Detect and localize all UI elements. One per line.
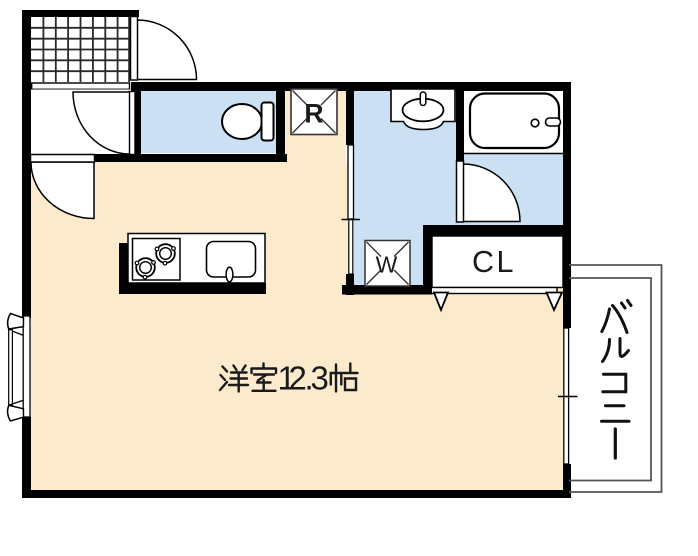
svg-text:R: R xyxy=(304,99,323,129)
svg-text:W: W xyxy=(376,252,398,278)
svg-text:CL: CL xyxy=(472,245,516,279)
svg-text:3: 3 xyxy=(311,360,329,397)
